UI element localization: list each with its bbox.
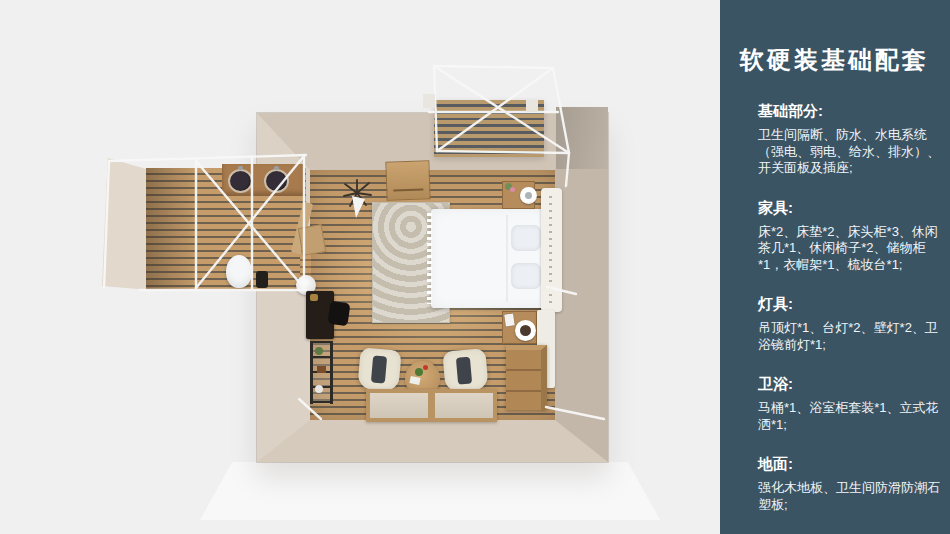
table-plant	[415, 368, 423, 376]
headboard	[541, 188, 562, 312]
section-basics: 基础部分: 卫生间隔断、防水、水电系统（强电、弱电、给水、排水）、开关面板及插座…	[758, 102, 940, 177]
storage-dresser	[506, 345, 547, 410]
section-heading: 基础部分:	[758, 102, 940, 121]
shelf-plant	[315, 347, 323, 355]
section-furniture: 家具: 床*2、床垫*2、床头柜*3、休闲茶几*1、休闲椅子*2、储物柜*1，衣…	[758, 199, 940, 274]
toilet	[226, 255, 252, 288]
lounge-chair-left	[357, 347, 401, 391]
floor-mats	[366, 389, 497, 422]
roof-shadow	[556, 107, 608, 169]
faucet-icon	[274, 166, 279, 170]
section-heading: 灯具:	[758, 295, 940, 314]
spec-sections: 基础部分: 卫生间隔断、防水、水电系统（强电、弱电、给水、排水）、开关面板及插座…	[758, 102, 940, 513]
coffee-cup	[515, 320, 536, 341]
leaning-shelf-box	[298, 224, 326, 256]
section-heading: 卫浴:	[758, 375, 940, 394]
slide-canvas: 软硬装基础配套 基础部分: 卫生间隔断、防水、水电系统（强电、弱电、给水、排水）…	[0, 0, 950, 534]
shelf-books	[317, 366, 326, 373]
section-heading: 地面:	[758, 455, 940, 474]
section-body: 卫生间隔断、防水、水电系统（强电、弱电、给水、排水）、开关面板及插座;	[758, 127, 940, 177]
pillow	[511, 225, 541, 251]
faucet-icon	[238, 166, 243, 170]
section-bathroom: 卫浴: 马桶*1、浴室柜套装*1、立式花洒*1;	[758, 375, 940, 433]
section-lighting: 灯具: 吊顶灯*1、台灯*2、壁灯*2、卫浴镜前灯*1;	[758, 295, 940, 353]
terrace-deck	[434, 100, 544, 157]
sink-left	[228, 169, 253, 193]
section-body: 吊顶灯*1、台灯*2、壁灯*2、卫浴镜前灯*1;	[758, 320, 940, 353]
cosmetic-cards	[504, 313, 515, 326]
section-flooring: 地面: 强化木地板、卫生间防滑防潮石塑板;	[758, 455, 940, 513]
sidebar-title: 软硬装基础配套	[740, 44, 950, 76]
bed	[431, 209, 550, 308]
desk-accessory	[310, 294, 318, 301]
table-lamp	[520, 187, 537, 204]
lounge-chair-right	[442, 348, 488, 393]
section-body: 床*2、床垫*2、床头柜*3、休闲茶几*1、休闲椅子*2、储物柜*1，衣帽架*1…	[758, 224, 940, 274]
section-heading: 家具:	[758, 199, 940, 218]
section-body: 马桶*1、浴室柜套装*1、立式花洒*1;	[758, 400, 940, 433]
flowers	[510, 187, 515, 192]
floor-drain	[256, 271, 268, 288]
spec-sidebar: 软硬装基础配套 基础部分: 卫生间隔断、防水、水电系统（强电、弱电、给水、排水）…	[717, 0, 950, 534]
table-fruit	[423, 365, 428, 370]
desk-chair	[327, 301, 350, 327]
ground-glow	[200, 462, 660, 520]
mat	[435, 393, 493, 418]
nightstand-cabinet	[385, 160, 430, 201]
bathroom-wall	[102, 158, 150, 290]
pillow	[511, 263, 541, 289]
mat	[370, 393, 428, 418]
sink-right	[264, 169, 289, 193]
section-body: 强化木地板、卫生间防滑防潮石塑板;	[758, 480, 940, 513]
shelf-vase	[315, 385, 323, 393]
